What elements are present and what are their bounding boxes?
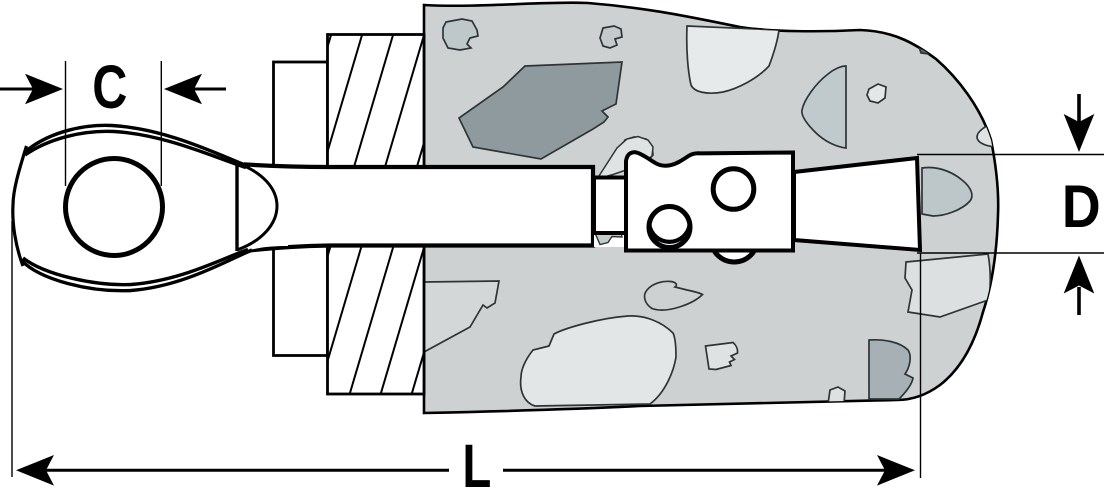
svg-text:C: C xyxy=(92,53,127,122)
svg-text:D: D xyxy=(1062,173,1101,240)
svg-text:L: L xyxy=(462,431,491,488)
